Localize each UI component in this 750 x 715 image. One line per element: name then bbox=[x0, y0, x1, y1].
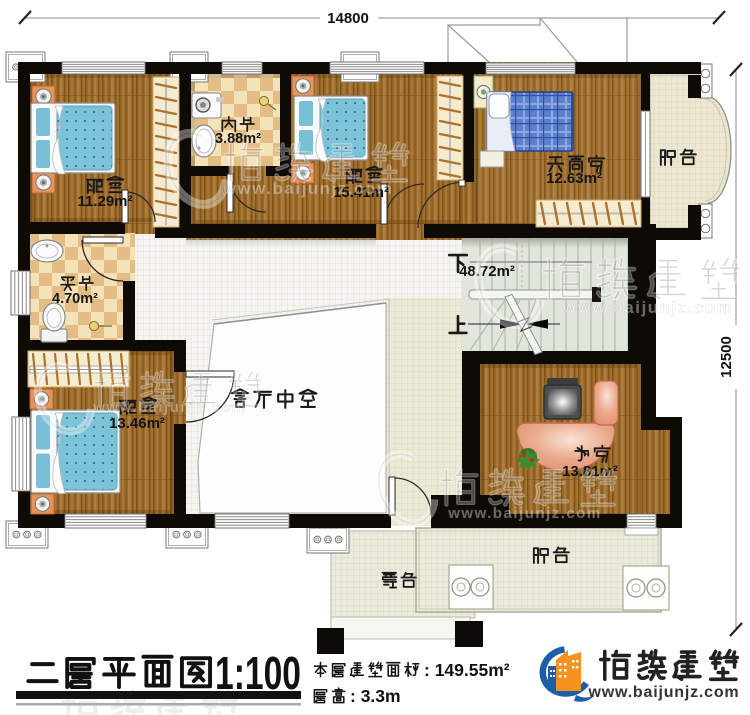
svg-text:: 149.55m²: : 149.55m² bbox=[424, 660, 510, 680]
svg-text:48.72m²: 48.72m² bbox=[459, 263, 515, 280]
svg-text:: 3.3m: : 3.3m bbox=[350, 686, 401, 706]
svg-text:12500: 12500 bbox=[718, 336, 735, 378]
svg-text:4.70m²: 4.70m² bbox=[52, 291, 98, 307]
svg-text:13.46m²: 13.46m² bbox=[109, 415, 165, 432]
svg-text:www.baijunjz.com: www.baijunjz.com bbox=[562, 298, 734, 317]
svg-text:14800: 14800 bbox=[327, 10, 369, 27]
svg-text:12.63m²: 12.63m² bbox=[546, 170, 602, 187]
svg-text:3.88m²: 3.88m² bbox=[215, 131, 261, 147]
svg-text:www.baijunjz.com: www.baijunjz.com bbox=[447, 505, 601, 522]
svg-text:11.29m²: 11.29m² bbox=[77, 193, 132, 210]
svg-text:www.baijunjz.com: www.baijunjz.com bbox=[92, 399, 246, 416]
svg-text:www.baijunjz.com: www.baijunjz.com bbox=[588, 684, 740, 701]
svg-text:www.baijunjz.com: www.baijunjz.com bbox=[222, 179, 394, 198]
